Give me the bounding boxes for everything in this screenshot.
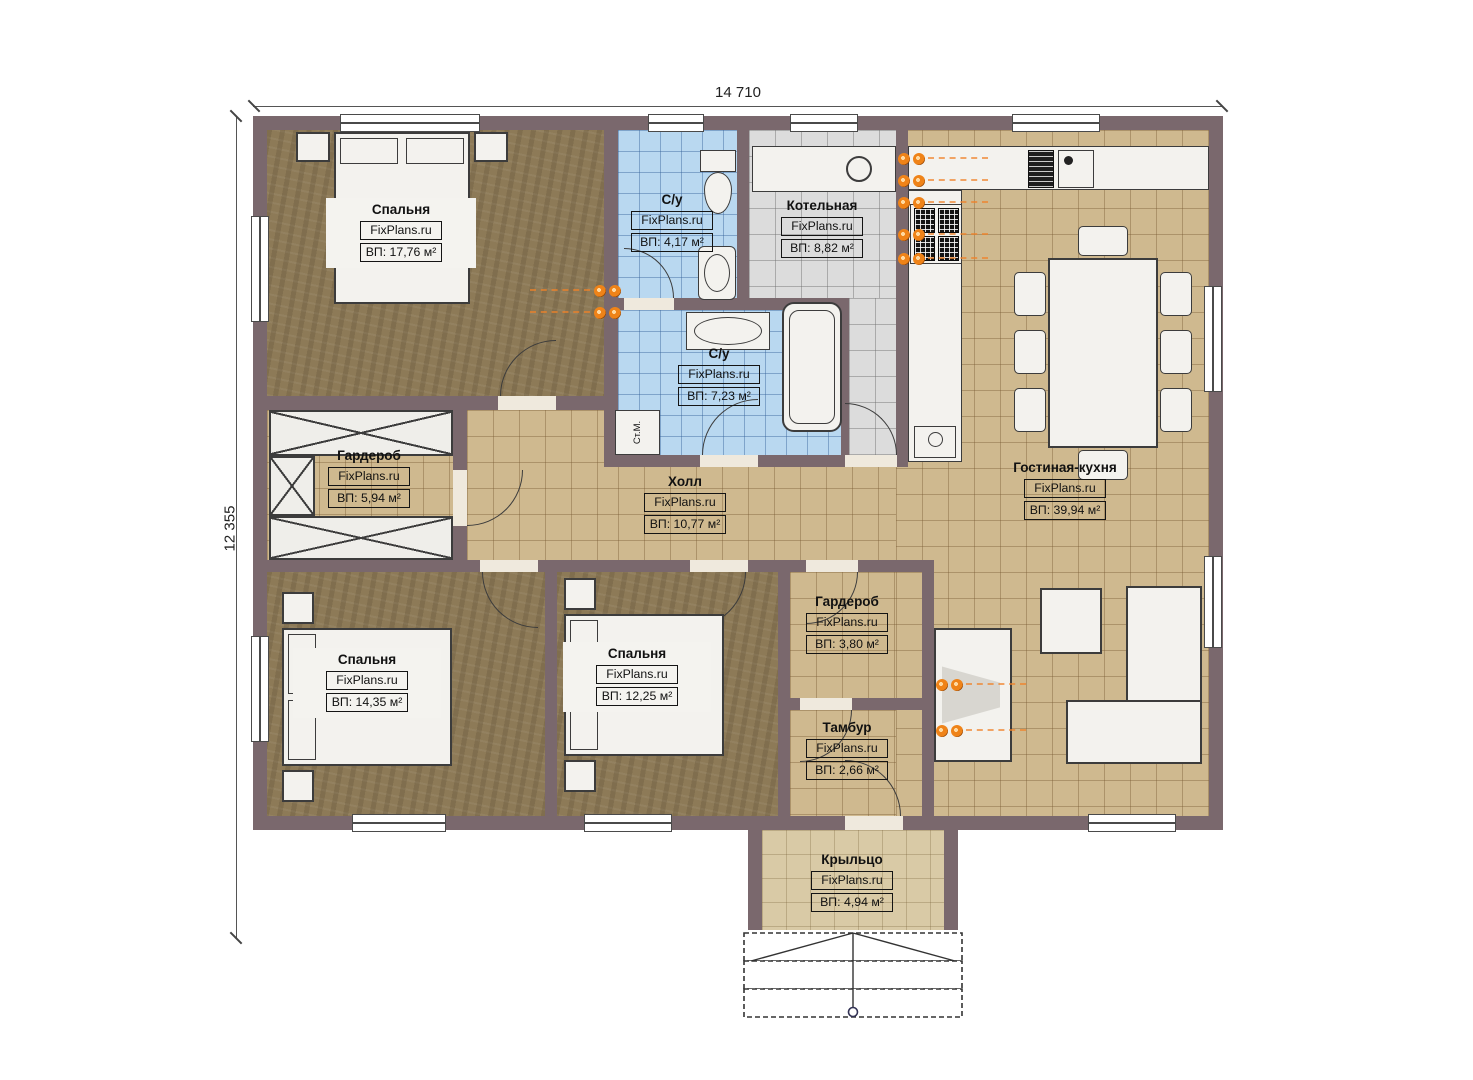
room-area: ВП: 4,17 м²: [631, 233, 713, 252]
room-name: Гардероб: [815, 594, 879, 610]
sofa: [1126, 586, 1202, 706]
pillow: [340, 138, 398, 164]
boiler-counter: [752, 146, 896, 192]
window: [1012, 114, 1100, 132]
fixplans-watermark: FixPlans.ru: [644, 493, 726, 512]
fixplans-watermark: FixPlans.ru: [811, 871, 893, 890]
faucet-icon: [1064, 156, 1073, 165]
radiator-icon: [898, 152, 925, 165]
chair: [1160, 330, 1192, 374]
fixplans-watermark: FixPlans.ru: [806, 613, 888, 632]
window: [340, 114, 480, 132]
radiator-icon: [936, 678, 963, 691]
fixplans-watermark: FixPlans.ru: [328, 467, 410, 486]
doorway: [690, 560, 748, 572]
dimension-height-label: 12 355: [222, 449, 239, 609]
window: [251, 636, 269, 742]
fixplans-watermark: FixPlans.ru: [360, 221, 442, 240]
closet: [269, 516, 453, 560]
dining-table: [1048, 258, 1158, 448]
nightstand: [296, 132, 330, 162]
fixplans-watermark: FixPlans.ru: [781, 217, 863, 236]
room-label-hall: Холл FixPlans.ru ВП: 10,77 м²: [625, 474, 745, 534]
room-area: ВП: 10,77 м²: [644, 515, 727, 534]
room-name: Котельная: [787, 198, 858, 214]
floor-plan: Ст.М. Спал: [0, 0, 1473, 1080]
room-name: Спальня: [338, 652, 396, 668]
sink-bowl: [928, 432, 943, 447]
room-area: ВП: 2,66 м²: [806, 761, 888, 780]
chair: [1014, 330, 1046, 374]
fixplans-watermark: FixPlans.ru: [596, 665, 678, 684]
porch-wall: [748, 830, 762, 930]
room-name: Гостиная-кухня: [1013, 460, 1116, 476]
room-name: Спальня: [608, 646, 666, 662]
window: [790, 114, 858, 132]
room-name: Холл: [668, 474, 702, 490]
dish-drainer: [1028, 150, 1054, 188]
room-name: Гардероб: [337, 448, 401, 464]
window: [648, 114, 704, 132]
nightstand: [282, 770, 314, 802]
doorway: [845, 455, 897, 467]
washing-machine: Ст.М.: [615, 410, 660, 455]
room-label-living-kitchen: Гостиная-кухня FixPlans.ru ВП: 39,94 м²: [995, 460, 1135, 520]
room-area: ВП: 39,94 м²: [1024, 501, 1107, 520]
room-area: ВП: 3,80 м²: [806, 635, 888, 654]
room-label-porch: Крыльцо FixPlans.ru ВП: 4,94 м²: [792, 852, 912, 912]
burner-icon: [938, 208, 959, 233]
radiator-icon: [898, 252, 925, 265]
doorway: [624, 298, 674, 310]
room-label-bedroom-3: Спальня FixPlans.ru ВП: 12,25 м²: [563, 642, 711, 712]
room-area: ВП: 7,23 м²: [678, 387, 760, 406]
doorway: [480, 560, 538, 572]
fixplans-watermark: FixPlans.ru: [631, 211, 713, 230]
room-name: С/у: [708, 346, 729, 362]
nightstand: [564, 760, 596, 792]
radiator-icon: [898, 196, 925, 209]
porch-steps: [743, 932, 963, 1018]
doorway: [700, 455, 758, 467]
nightstand: [474, 132, 508, 162]
doorway: [806, 560, 858, 572]
washing-machine-label: Ст.М.: [632, 421, 643, 444]
radiator-icon: [898, 228, 925, 241]
room-label-boiler-room: Котельная FixPlans.ru ВП: 8,82 м²: [757, 198, 887, 258]
sink-bowl: [694, 317, 762, 345]
room-area: ВП: 17,76 м²: [360, 243, 443, 262]
washbasin-bowl: [704, 254, 730, 292]
room-area: ВП: 12,25 м²: [596, 687, 679, 706]
toilet-tank: [700, 150, 736, 172]
doorway: [453, 470, 467, 526]
dimension-width-label: 14 710: [253, 84, 1223, 101]
room-label-bedroom-2: Спальня FixPlans.ru ВП: 14,35 м²: [293, 648, 441, 718]
chair: [1160, 388, 1192, 432]
fixplans-watermark: FixPlans.ru: [1024, 479, 1106, 498]
room-area: ВП: 14,35 м²: [326, 693, 409, 712]
room-area: ВП: 4,94 м²: [811, 893, 893, 912]
nightstand: [564, 578, 596, 610]
doorway: [800, 698, 852, 710]
room-name: Тамбур: [823, 720, 872, 736]
window: [1204, 286, 1222, 392]
chair: [1160, 272, 1192, 316]
room-label-wardrobe-1: Гардероб FixPlans.ru ВП: 5,94 м²: [308, 448, 430, 508]
doorway: [498, 396, 556, 410]
window: [1204, 556, 1222, 648]
dimension-line: [253, 106, 1223, 107]
room-label-bedroom-1: Спальня FixPlans.ru ВП: 17,76 м²: [326, 198, 476, 268]
chair: [1014, 388, 1046, 432]
fixplans-watermark: FixPlans.ru: [678, 365, 760, 384]
room-area: ВП: 8,82 м²: [781, 239, 863, 258]
room-label-bathroom-2: С/у FixPlans.ru ВП: 7,23 м²: [664, 346, 774, 406]
radiator-icon: [898, 174, 925, 187]
pillow: [406, 138, 464, 164]
window: [1088, 814, 1176, 832]
entry-doorway: [845, 816, 903, 830]
fixplans-watermark: FixPlans.ru: [806, 739, 888, 758]
radiator-icon: [594, 306, 621, 319]
kitchen-sink: [1058, 150, 1094, 188]
room-label-wardrobe-2: Гардероб FixPlans.ru ВП: 3,80 м²: [788, 594, 906, 654]
window: [352, 814, 446, 832]
room-label-vestibule: Тамбур FixPlans.ru ВП: 2,66 м²: [788, 720, 906, 780]
sofa: [1066, 700, 1202, 764]
room-name: С/у: [661, 192, 682, 208]
window: [251, 216, 269, 322]
radiator-icon: [936, 724, 963, 737]
radiator-icon: [594, 284, 621, 297]
bathtub-inner: [789, 310, 835, 424]
porch-wall: [944, 830, 958, 930]
boiler-icon: [846, 156, 872, 182]
window: [584, 814, 672, 832]
chair: [1014, 272, 1046, 316]
room-name: Спальня: [372, 202, 430, 218]
nightstand: [282, 592, 314, 624]
room-name: Крыльцо: [821, 852, 882, 868]
room-area: ВП: 5,94 м²: [328, 489, 410, 508]
fixplans-watermark: FixPlans.ru: [326, 671, 408, 690]
chair: [1078, 226, 1128, 256]
room-label-bathroom-1: С/у FixPlans.ru ВП: 4,17 м²: [622, 192, 722, 252]
coffee-table: [1040, 588, 1102, 654]
